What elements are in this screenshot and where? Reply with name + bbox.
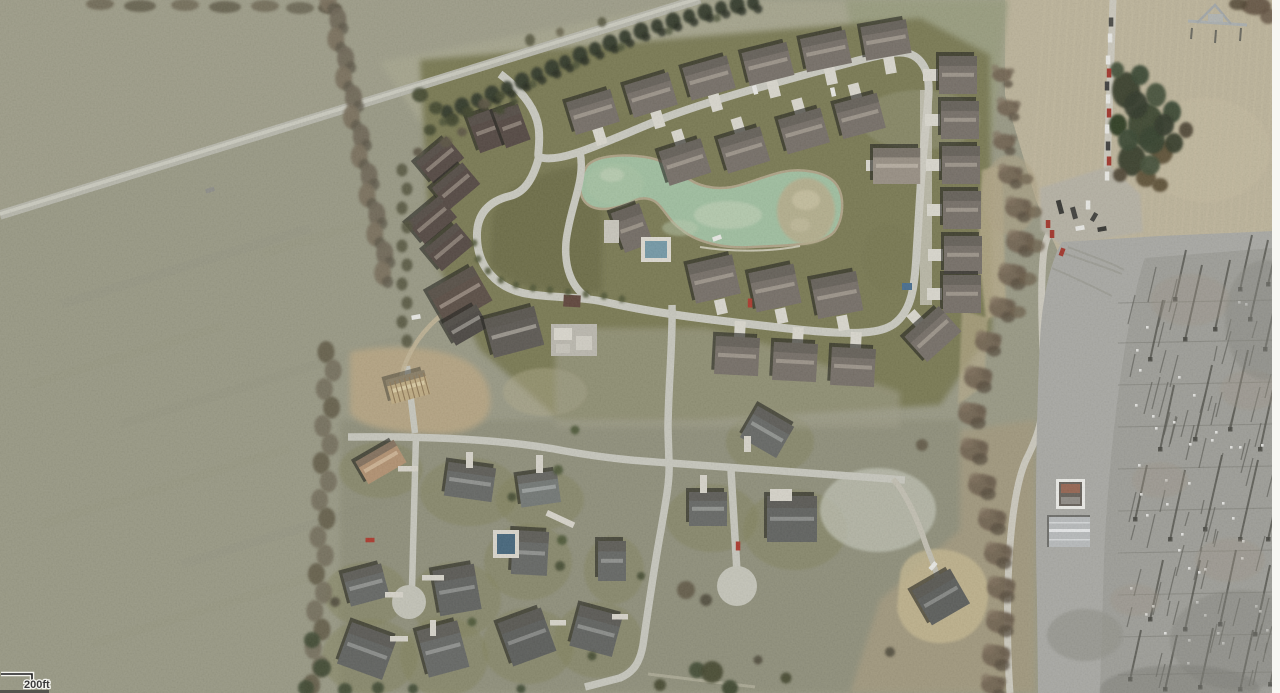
svg-text:200ft: 200ft [24, 679, 50, 691]
